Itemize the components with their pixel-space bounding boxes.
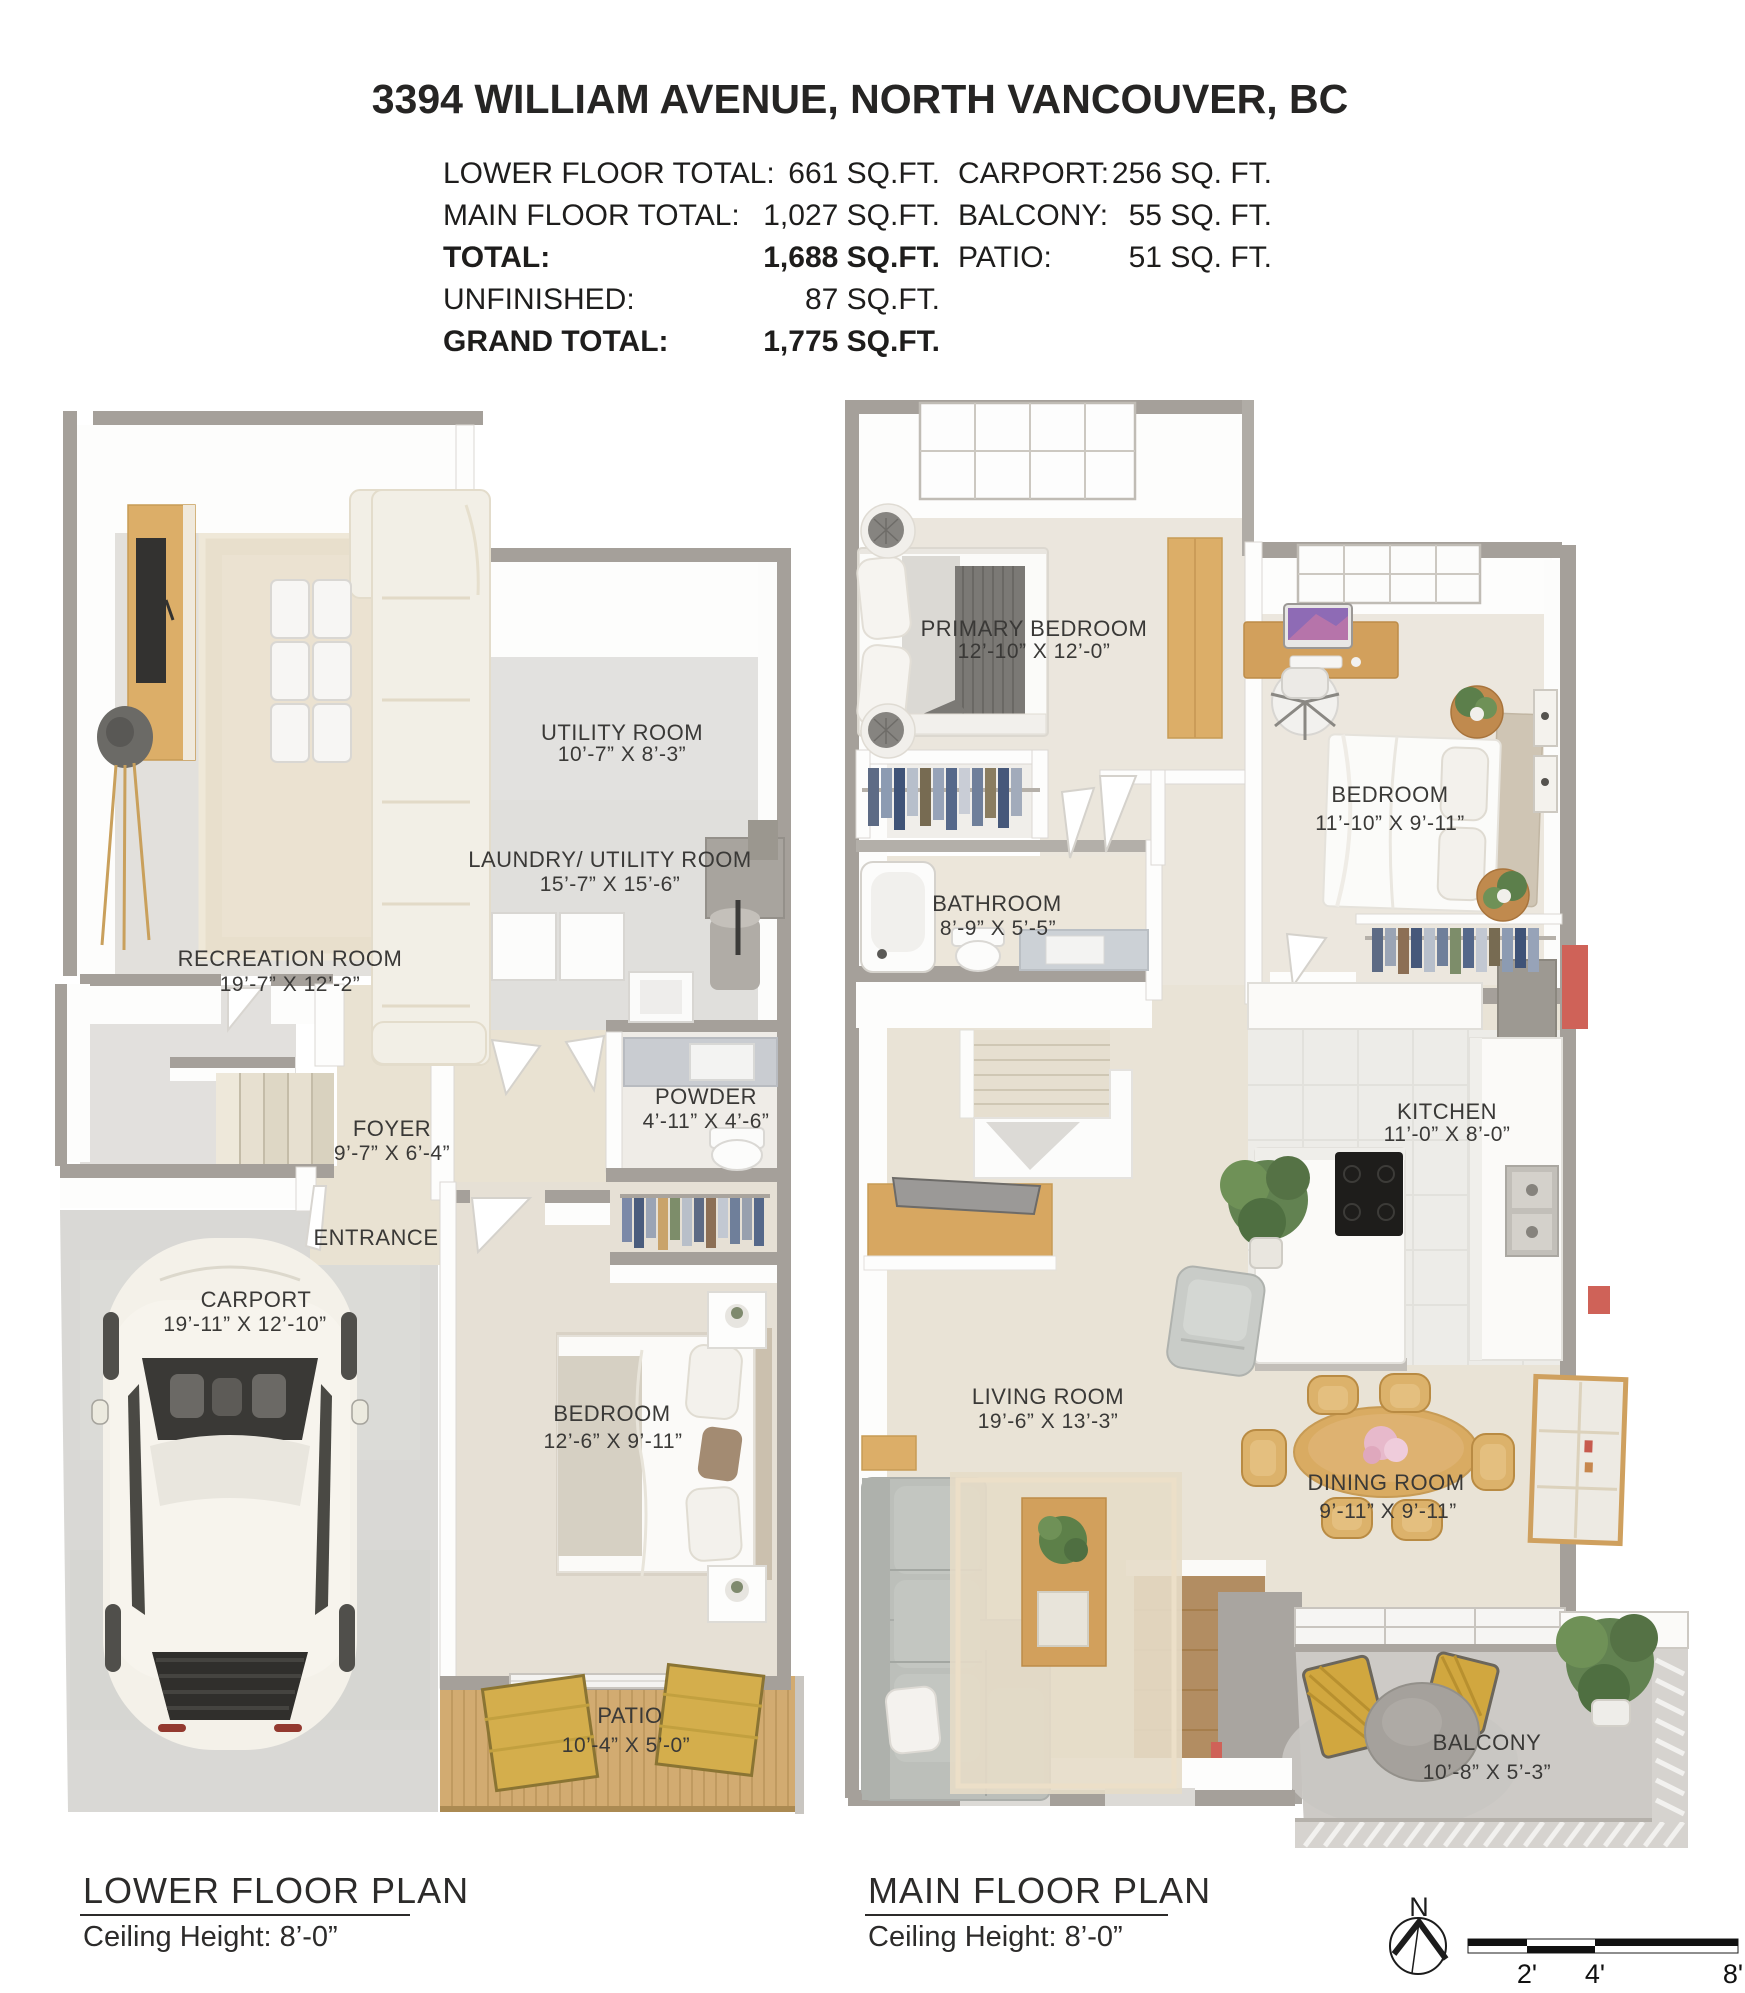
svg-text:CARPORT:: CARPORT: xyxy=(958,157,1109,190)
svg-text:661 SQ.FT.: 661 SQ.FT. xyxy=(788,157,940,190)
svg-text:9’-11” X 9’-11”: 9’-11” X 9’-11” xyxy=(1319,1500,1456,1523)
svg-text:8': 8' xyxy=(1723,1959,1743,1989)
svg-text:19’-7” X 12’-2”: 19’-7” X 12’-2” xyxy=(220,973,361,996)
svg-text:Ceiling Height: 8’-0”: Ceiling Height: 8’-0” xyxy=(868,1921,1123,1953)
svg-text:PRIMARY BEDROOM: PRIMARY BEDROOM xyxy=(921,616,1148,641)
svg-text:256 SQ. FT.: 256 SQ. FT. xyxy=(1112,157,1272,190)
svg-text:MAIN FLOOR PLAN: MAIN FLOOR PLAN xyxy=(868,1870,1211,1911)
svg-text:KITCHEN: KITCHEN xyxy=(1397,1099,1497,1124)
svg-text:CARPORT: CARPORT xyxy=(201,1287,312,1312)
svg-text:RECREATION ROOM: RECREATION ROOM xyxy=(178,946,403,971)
svg-text:19’-11” X 12’-10”: 19’-11” X 12’-10” xyxy=(163,1313,326,1336)
svg-text:11’-0” X 8’-0”: 11’-0” X 8’-0” xyxy=(1384,1123,1511,1146)
svg-text:UNFINISHED:: UNFINISHED: xyxy=(443,283,635,316)
svg-text:FOYER: FOYER xyxy=(353,1116,431,1141)
svg-text:8’-9” X 5’-5”: 8’-9” X 5’-5” xyxy=(940,917,1056,940)
svg-text:UTILITY ROOM: UTILITY ROOM xyxy=(541,720,703,745)
svg-text:9’-7” X 6’-4”: 9’-7” X 6’-4” xyxy=(334,1142,450,1165)
svg-text:MAIN FLOOR TOTAL:: MAIN FLOOR TOTAL: xyxy=(443,199,740,232)
svg-text:Ceiling Height: 8’-0”: Ceiling Height: 8’-0” xyxy=(83,1921,338,1953)
svg-text:PATIO: PATIO xyxy=(597,1703,662,1728)
svg-text:10’-4” X 5’-0”: 10’-4” X 5’-0” xyxy=(562,1734,690,1757)
svg-text:19’-6” X 13’-3”: 19’-6” X 13’-3” xyxy=(978,1410,1119,1433)
svg-text:1,775 SQ.FT.: 1,775 SQ.FT. xyxy=(763,325,940,358)
svg-text:PATIO:: PATIO: xyxy=(958,241,1052,274)
svg-text:1,027 SQ.FT.: 1,027 SQ.FT. xyxy=(763,199,940,232)
svg-text:BALCONY: BALCONY xyxy=(1433,1730,1542,1755)
svg-text:4': 4' xyxy=(1585,1959,1605,1989)
svg-text:LIVING ROOM: LIVING ROOM xyxy=(972,1384,1124,1409)
svg-text:POWDER: POWDER xyxy=(655,1084,757,1109)
svg-text:LAUNDRY/ UTILITY ROOM: LAUNDRY/ UTILITY ROOM xyxy=(468,847,752,872)
svg-text:GRAND TOTAL:: GRAND TOTAL: xyxy=(443,325,669,358)
svg-text:10’-8” X 5’-3”: 10’-8” X 5’-3” xyxy=(1423,1761,1551,1784)
svg-text:10’-7” X 8’-3”: 10’-7” X 8’-3” xyxy=(558,743,686,766)
svg-text:LOWER FLOOR TOTAL:: LOWER FLOOR TOTAL: xyxy=(443,157,775,190)
svg-text:11’-10” X 9’-11”: 11’-10” X 9’-11” xyxy=(1315,812,1465,835)
svg-text:DINING ROOM: DINING ROOM xyxy=(1307,1470,1464,1495)
svg-text:12’-6” X 9’-11”: 12’-6” X 9’-11” xyxy=(544,1430,683,1453)
svg-text:BEDROOM: BEDROOM xyxy=(1331,782,1448,807)
svg-text:4’-11” X 4’-6”: 4’-11” X 4’-6” xyxy=(643,1110,770,1133)
svg-text:51 SQ. FT.: 51 SQ. FT. xyxy=(1129,241,1272,274)
svg-text:BATHROOM: BATHROOM xyxy=(932,891,1061,916)
svg-text:12’-10” X 12’-0”: 12’-10” X 12’-0” xyxy=(958,640,1111,663)
svg-text:ENTRANCE: ENTRANCE xyxy=(313,1225,438,1250)
svg-text:55 SQ. FT.: 55 SQ. FT. xyxy=(1129,199,1272,232)
svg-text:BALCONY:: BALCONY: xyxy=(958,199,1108,232)
svg-text:BEDROOM: BEDROOM xyxy=(553,1401,670,1426)
svg-text:LOWER FLOOR PLAN: LOWER FLOOR PLAN xyxy=(83,1870,469,1911)
svg-text:15’-7” X 15’-6”: 15’-7” X 15’-6” xyxy=(540,873,681,896)
svg-text:3394 WILLIAM AVENUE, NORTH VAN: 3394 WILLIAM AVENUE, NORTH VANCOUVER, BC xyxy=(372,76,1349,122)
svg-text:2': 2' xyxy=(1517,1959,1537,1989)
svg-text:87 SQ.FT.: 87 SQ.FT. xyxy=(805,283,940,316)
svg-text:TOTAL:: TOTAL: xyxy=(443,241,550,274)
svg-text:1,688 SQ.FT.: 1,688 SQ.FT. xyxy=(763,241,940,274)
